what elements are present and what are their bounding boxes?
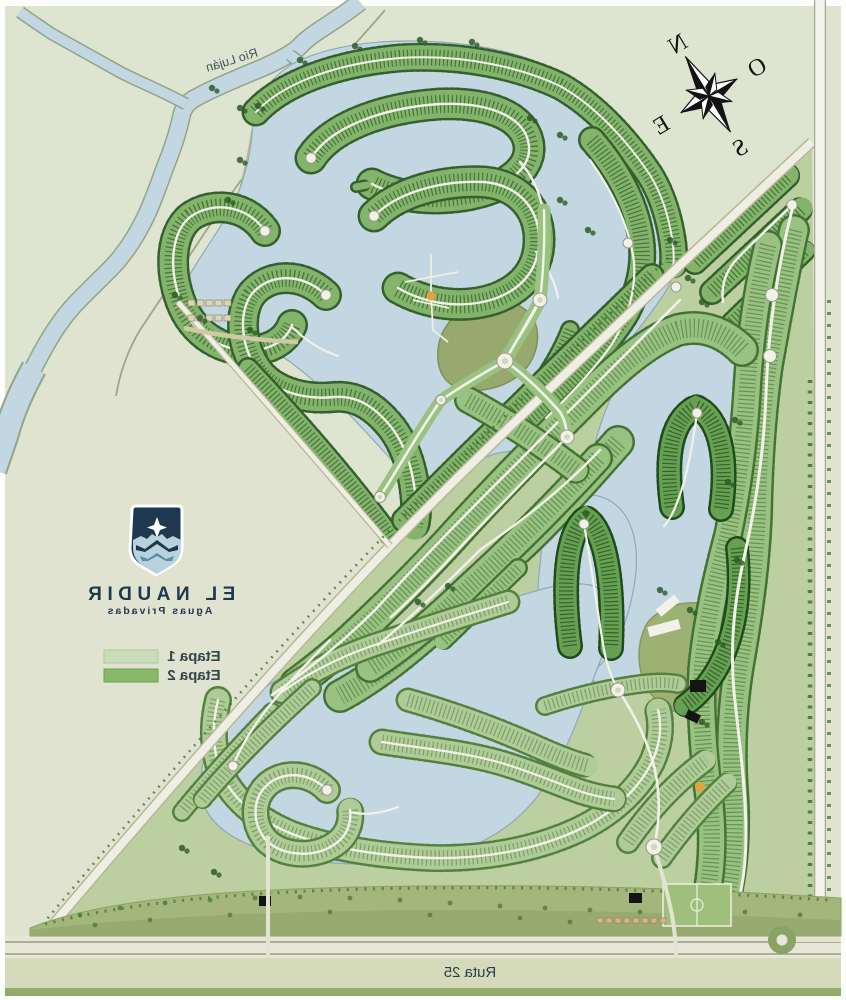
svg-text:EL NAUDIR: EL NAUDIR	[83, 584, 236, 605]
svg-text:Etapa 2: Etapa 2	[167, 667, 220, 684]
svg-text:Aguas Privadas: Aguas Privadas	[106, 605, 213, 617]
svg-text:Etapa 1: Etapa 1	[167, 648, 220, 665]
svg-text:Ruta 25: Ruta 25	[444, 964, 497, 981]
